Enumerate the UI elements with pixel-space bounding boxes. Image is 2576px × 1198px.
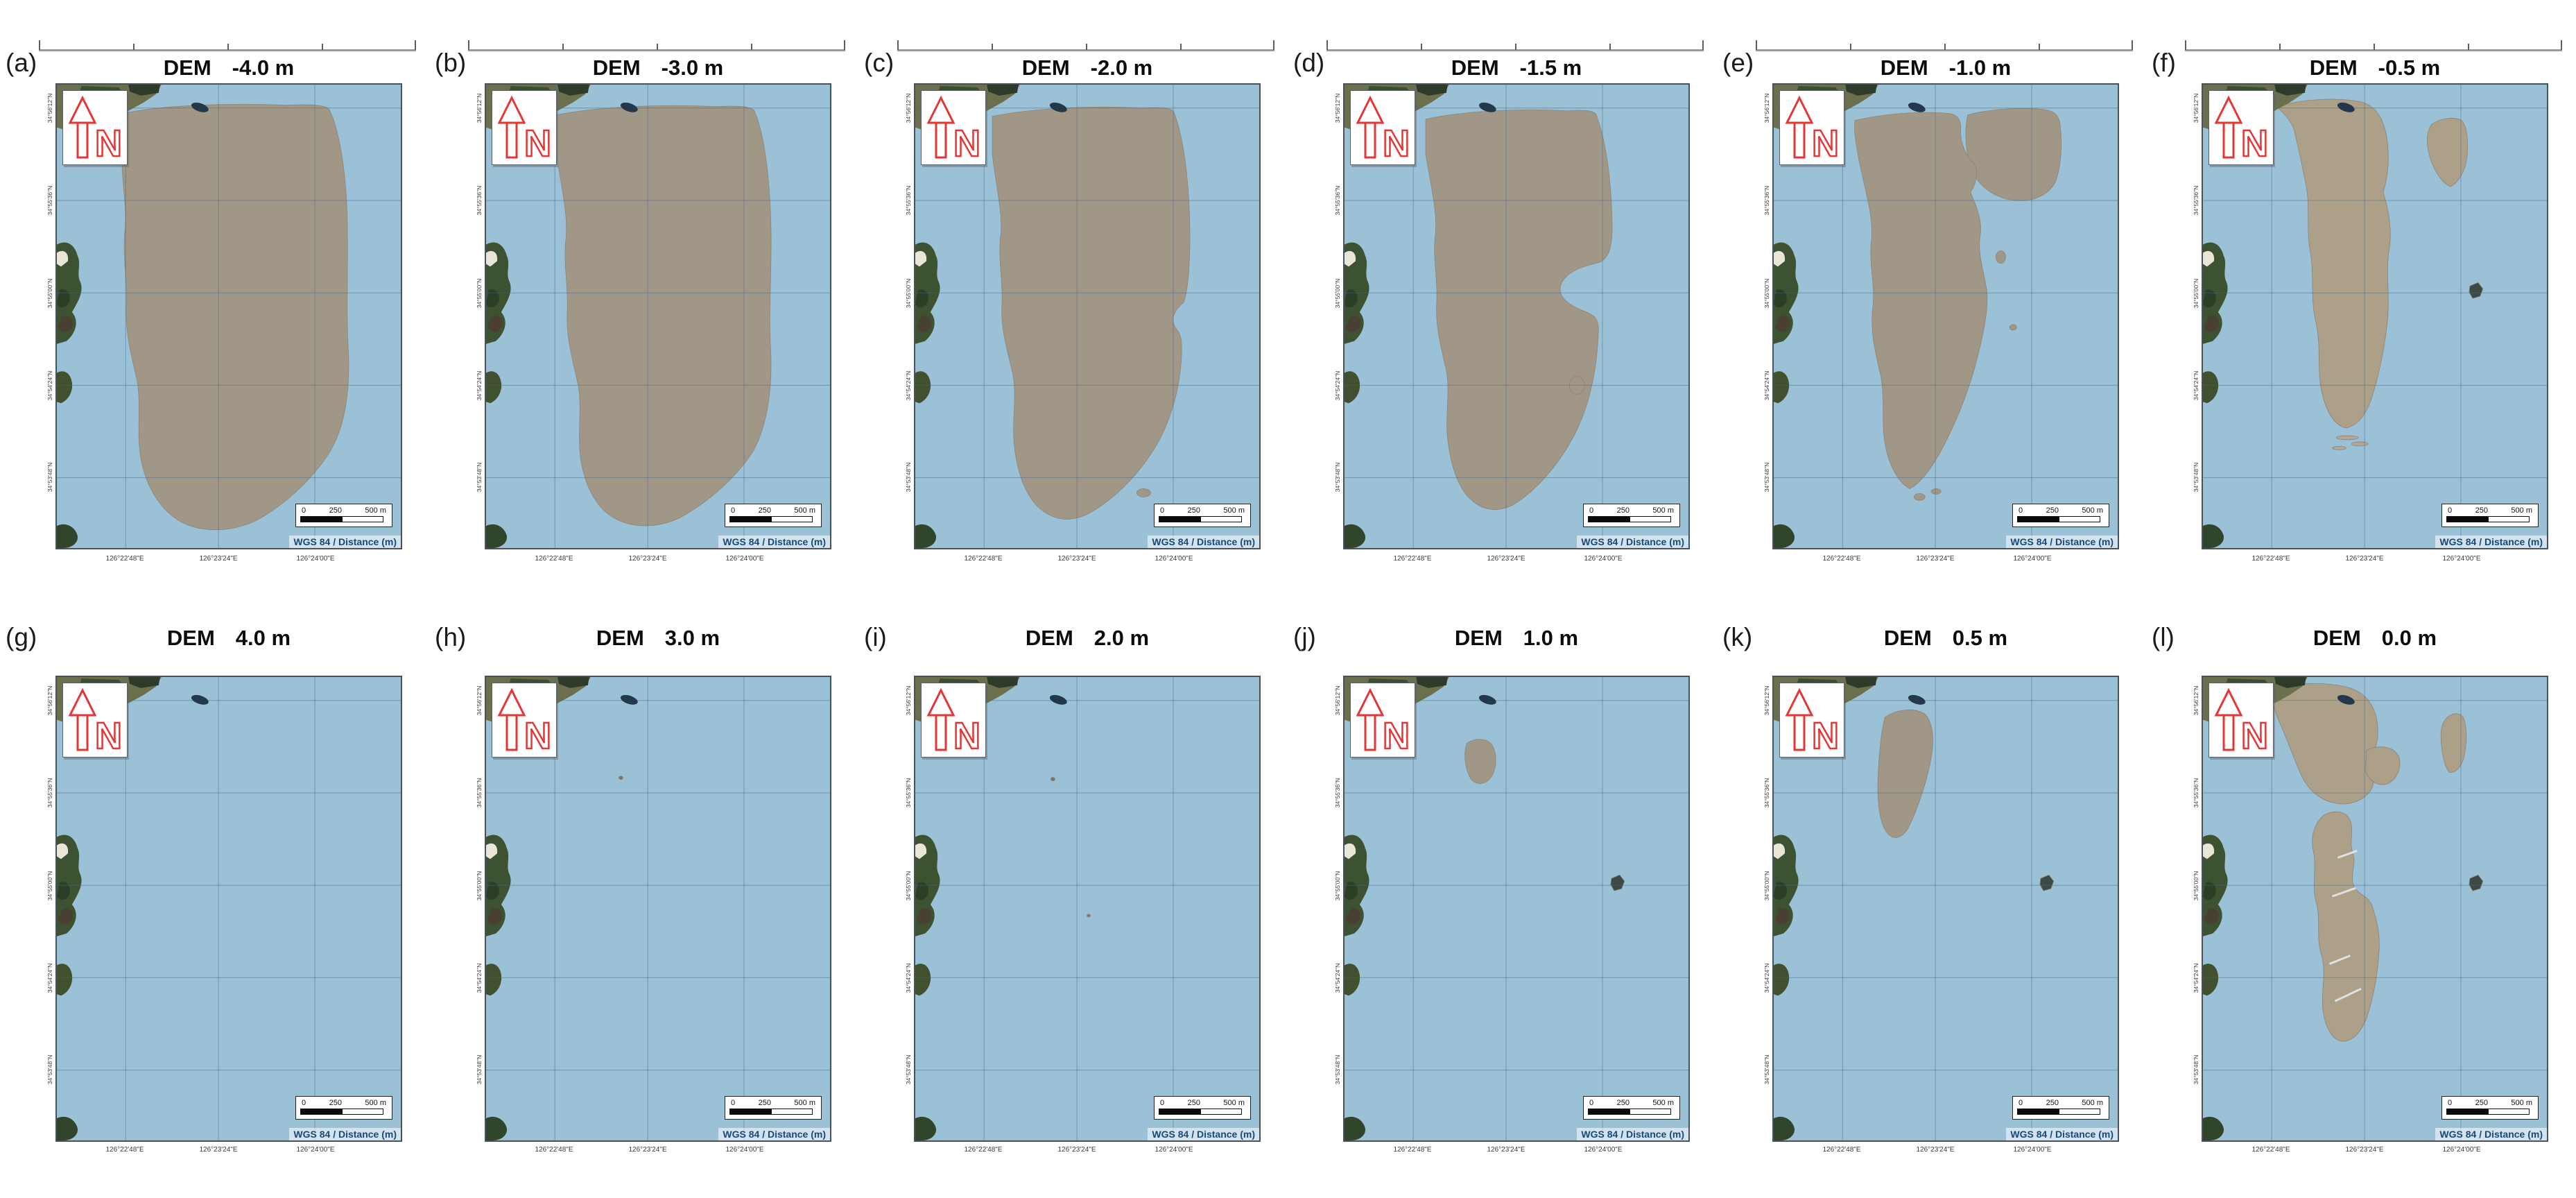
longitude-axis: 126°22'48"E 126°23'24"E 126°24'00"E xyxy=(55,1145,402,1157)
lon-label: 126°23'24"E xyxy=(1487,1146,1525,1154)
lat-label: 34°54'24"N xyxy=(1334,963,1341,993)
lat-label: 34°53'48"N xyxy=(1334,463,1341,493)
north-arrow-box: N xyxy=(921,90,986,165)
lat-label: 34°56'12"N xyxy=(905,94,912,123)
tidal-flat-shape xyxy=(1465,739,1496,784)
scale-tick-500: 500 m xyxy=(794,506,815,515)
lon-label: 126°24'00"E xyxy=(2013,555,2051,563)
north-arrow-icon: N xyxy=(1780,683,1844,757)
panel-title: DEM-0.5 m xyxy=(2202,55,2548,80)
lat-label: 34°55'00"N xyxy=(1763,871,1770,900)
tidal-flat-islands xyxy=(619,776,623,780)
north-arrow-icon: N xyxy=(2209,683,2273,757)
dem-label: DEM xyxy=(1455,626,1503,650)
dem-label: DEM xyxy=(593,55,641,80)
lat-label: 34°54'24"N xyxy=(2193,370,2199,400)
scale-bar: 0 250 500 m xyxy=(2012,1096,2109,1120)
map-view: 34°56'12"N 34°55'36"N 34°55'00"N 34°54'2… xyxy=(55,83,402,549)
north-arrow-icon: N xyxy=(2209,91,2273,164)
scale-tick-zero: 0 xyxy=(2448,1099,2452,1107)
lon-label: 126°24'00"E xyxy=(2442,1146,2480,1154)
north-label: N xyxy=(2241,715,2268,757)
lat-label: 34°56'12"N xyxy=(476,686,483,716)
lat-label: 34°53'48"N xyxy=(2193,463,2199,493)
tidal-flat-shape xyxy=(1051,778,1055,781)
lat-label: 34°55'36"N xyxy=(1334,778,1341,808)
lon-label: 126°23'24"E xyxy=(1916,1146,1954,1154)
lat-label: 34°55'36"N xyxy=(905,778,912,808)
lat-label: 34°54'24"N xyxy=(1334,370,1341,400)
scale-bar: 0 250 500 m xyxy=(2012,504,2109,527)
dem-label: DEM xyxy=(1022,55,1070,80)
dem-label: DEM xyxy=(1026,626,1073,650)
scale-tick-250: 250 xyxy=(2046,506,2059,515)
north-arrow-icon: N xyxy=(63,91,127,164)
lon-label: 126°22'48"E xyxy=(2251,1146,2290,1154)
scale-tick-zero: 0 xyxy=(1160,1099,1164,1107)
panel-id-label: (a) xyxy=(6,49,37,78)
map-panel: (b) DEM-3.0 m 34°56'12"N 34°55'36"N 34°5… xyxy=(429,0,858,576)
map-view: 34°56'12"N 34°55'36"N 34°55'00"N 34°54'2… xyxy=(485,676,831,1142)
lat-label: 34°55'36"N xyxy=(46,778,53,808)
crs-label: WGS 84 / Distance (m) xyxy=(2006,536,2118,548)
map-view: 34°56'12"N 34°55'36"N 34°55'00"N 34°54'2… xyxy=(2202,83,2548,549)
panel-id-label: (d) xyxy=(1293,49,1324,78)
north-arrow-icon: N xyxy=(1351,91,1415,164)
north-arrow-box: N xyxy=(492,683,557,758)
lon-label: 126°23'24"E xyxy=(1057,1146,1096,1154)
map-view: 34°56'12"N 34°55'36"N 34°55'00"N 34°54'2… xyxy=(914,676,1261,1142)
lon-label: 126°24'00"E xyxy=(725,1146,763,1154)
panel-id-label: (g) xyxy=(6,623,37,652)
north-label: N xyxy=(2241,123,2268,164)
longitude-axis: 126°22'48"E 126°23'24"E 126°24'00"E xyxy=(2202,1145,2548,1157)
scale-tick-500: 500 m xyxy=(1652,1099,1674,1107)
scale-tick-500: 500 m xyxy=(1652,506,1674,515)
tidal-flat-shape xyxy=(619,776,623,780)
lat-label: 34°55'36"N xyxy=(2193,186,2199,216)
lat-label: 34°56'12"N xyxy=(46,94,53,123)
panel-id-label: (j) xyxy=(1293,623,1316,652)
map-view: 34°56'12"N 34°55'36"N 34°55'00"N 34°54'2… xyxy=(485,83,831,549)
tidal-flat-shape xyxy=(2009,325,2016,330)
dem-value: -1.5 m xyxy=(1520,55,1582,80)
panel-title: DEM-1.0 m xyxy=(1772,55,2119,80)
lon-label: 126°24'00"E xyxy=(1155,1146,1193,1154)
panel-id-label: (k) xyxy=(1722,623,1752,652)
lon-label: 126°22'48"E xyxy=(2251,555,2290,563)
lat-label: 34°53'48"N xyxy=(905,463,912,493)
dem-value: 3.0 m xyxy=(665,626,720,650)
longitude-axis: 126°22'48"E 126°23'24"E 126°24'00"E xyxy=(55,554,402,566)
lat-label: 34°55'00"N xyxy=(1334,871,1341,900)
scale-tick-500: 500 m xyxy=(365,1099,386,1107)
north-arrow-icon: N xyxy=(1780,91,1844,164)
lat-label: 34°55'00"N xyxy=(905,871,912,900)
lat-label: 34°55'00"N xyxy=(476,871,483,900)
lon-label: 126°22'48"E xyxy=(1822,1146,1860,1154)
figure-row-positive-dem: (g) DEM4.0 m 34°56'12"N 34°55'36"N 34°55… xyxy=(0,617,2575,1193)
crs-label: WGS 84 / Distance (m) xyxy=(2435,1128,2547,1140)
lon-label: 126°24'00"E xyxy=(1584,555,1622,563)
map-panel: (d) DEM-1.5 m 34°56'12"N 34°55'36"N 34°5… xyxy=(1288,0,1717,576)
lat-label: 34°54'24"N xyxy=(2193,963,2199,993)
north-arrow-icon: N xyxy=(1351,683,1415,757)
lon-label: 126°23'24"E xyxy=(199,1146,237,1154)
map-panel: (l) DEM0.0 m 34°56'12"N 34°55'36"N 34°55… xyxy=(2146,617,2575,1193)
map-panel: (f) DEM-0.5 m 34°56'12"N 34°55'36"N 34°5… xyxy=(2146,0,2575,576)
scale-bar: 0 250 500 m xyxy=(2441,504,2539,527)
map-panel: (i) DEM2.0 m 34°56'12"N 34°55'36"N 34°55… xyxy=(858,617,1288,1193)
lat-label: 34°53'48"N xyxy=(476,1055,483,1085)
north-label: N xyxy=(524,715,551,757)
lat-label: 34°53'48"N xyxy=(476,463,483,493)
dem-label: DEM xyxy=(167,626,215,650)
dem-label: DEM xyxy=(1884,626,1932,650)
lon-label: 126°23'24"E xyxy=(2345,555,2383,563)
scale-tick-zero: 0 xyxy=(2448,506,2452,515)
scale-bar: 0 250 500 m xyxy=(295,1096,392,1120)
top-ruler xyxy=(468,40,845,51)
dem-value: 0.0 m xyxy=(2382,626,2437,650)
map-panel: (j) DEM1.0 m 34°56'12"N 34°55'36"N 34°55… xyxy=(1288,617,1717,1193)
panel-id-label: (e) xyxy=(1722,49,1754,78)
dem-value: -2.0 m xyxy=(1091,55,1153,80)
map-panel: (g) DEM4.0 m 34°56'12"N 34°55'36"N 34°55… xyxy=(0,617,429,1193)
scale-bar: 0 250 500 m xyxy=(1583,1096,1680,1120)
north-label: N xyxy=(524,123,551,164)
lat-label: 34°55'36"N xyxy=(1334,186,1341,216)
dem-label: DEM xyxy=(2310,55,2358,80)
dem-value: 4.0 m xyxy=(236,626,291,650)
lat-label: 34°55'36"N xyxy=(905,186,912,216)
scale-tick-500: 500 m xyxy=(1223,1099,1245,1107)
lat-label: 34°53'48"N xyxy=(46,463,53,493)
dem-value: -4.0 m xyxy=(232,55,295,80)
tidal-flat-shape xyxy=(2336,436,2358,440)
lat-label: 34°53'48"N xyxy=(46,1055,53,1085)
north-arrow-box: N xyxy=(1779,90,1844,165)
north-label: N xyxy=(95,715,122,757)
scale-tick-250: 250 xyxy=(759,1099,771,1107)
map-panel: (e) DEM-1.0 m 34°56'12"N 34°55'36"N 34°5… xyxy=(1717,0,2146,576)
top-ruler xyxy=(2185,40,2562,51)
crs-label: WGS 84 / Distance (m) xyxy=(289,1128,401,1140)
north-label: N xyxy=(1812,715,1839,757)
lat-label: 34°56'12"N xyxy=(2193,94,2199,123)
panel-title: DEM-1.5 m xyxy=(1343,55,1690,80)
tidal-flat-shape xyxy=(2332,446,2346,450)
scale-bar: 0 250 500 m xyxy=(1583,504,1680,527)
north-label: N xyxy=(1383,715,1410,757)
lon-label: 126°24'00"E xyxy=(1584,1146,1622,1154)
dem-value: 1.0 m xyxy=(1523,626,1578,650)
longitude-axis: 126°22'48"E 126°23'24"E 126°24'00"E xyxy=(2202,554,2548,566)
scale-bar: 0 250 500 m xyxy=(295,504,392,527)
lat-label: 34°55'36"N xyxy=(1763,778,1770,808)
top-ruler xyxy=(1756,40,2133,51)
crs-label: WGS 84 / Distance (m) xyxy=(1148,536,1259,548)
north-arrow-box: N xyxy=(2208,90,2274,165)
tidal-flat-shape xyxy=(2351,442,2368,446)
panel-id-label: (c) xyxy=(864,49,894,78)
lon-label: 126°23'24"E xyxy=(1916,555,1954,563)
longitude-axis: 126°22'48"E 126°23'24"E 126°24'00"E xyxy=(485,554,831,566)
lat-label: 34°55'00"N xyxy=(2193,278,2199,308)
scale-tick-zero: 0 xyxy=(2019,1099,2023,1107)
lat-label: 34°55'00"N xyxy=(2193,871,2199,900)
map-panel: (c) DEM-2.0 m 34°56'12"N 34°55'36"N 34°5… xyxy=(858,0,1288,576)
scale-tick-zero: 0 xyxy=(1160,506,1164,515)
scale-tick-zero: 0 xyxy=(302,1099,306,1107)
lon-label: 126°24'00"E xyxy=(2442,555,2480,563)
tidal-flat-shape xyxy=(1931,489,1941,495)
lon-label: 126°22'48"E xyxy=(1393,555,1431,563)
tidal-flat-shape xyxy=(556,105,771,526)
dem-label: DEM xyxy=(2313,626,2361,650)
crs-label: WGS 84 / Distance (m) xyxy=(718,536,830,548)
lon-label: 126°22'48"E xyxy=(1393,1146,1431,1154)
lat-label: 34°56'12"N xyxy=(905,686,912,716)
north-arrow-icon: N xyxy=(922,683,985,757)
map-view: 34°56'12"N 34°55'36"N 34°55'00"N 34°54'2… xyxy=(55,676,402,1142)
panel-title: DEM0.5 m xyxy=(1772,626,2119,651)
lat-label: 34°54'24"N xyxy=(476,370,483,400)
scale-tick-zero: 0 xyxy=(1589,1099,1593,1107)
lat-label: 34°55'36"N xyxy=(2193,778,2199,808)
lon-label: 126°23'24"E xyxy=(2345,1146,2383,1154)
map-view: 34°56'12"N 34°55'36"N 34°55'00"N 34°54'2… xyxy=(1772,83,2119,549)
lat-label: 34°54'24"N xyxy=(1763,963,1770,993)
lat-label: 34°56'12"N xyxy=(476,94,483,123)
map-view: 34°56'12"N 34°55'36"N 34°55'00"N 34°54'2… xyxy=(1343,83,1690,549)
dem-label: DEM xyxy=(164,55,211,80)
dem-label: DEM xyxy=(1881,55,1928,80)
lon-label: 126°24'00"E xyxy=(296,555,334,563)
lon-label: 126°22'48"E xyxy=(105,555,144,563)
tidal-flat-shape xyxy=(1996,251,2005,264)
panel-id-label: (b) xyxy=(435,49,466,78)
lat-label: 34°55'00"N xyxy=(46,278,53,308)
north-arrow-icon: N xyxy=(922,91,985,164)
north-arrow-box: N xyxy=(62,90,128,165)
dem-value: 0.5 m xyxy=(1953,626,2007,650)
crs-label: WGS 84 / Distance (m) xyxy=(289,536,401,548)
panel-id-label: (f) xyxy=(2152,49,2176,78)
longitude-axis: 126°22'48"E 126°23'24"E 126°24'00"E xyxy=(1772,554,2119,566)
lat-label: 34°54'24"N xyxy=(46,963,53,993)
scale-tick-500: 500 m xyxy=(365,506,386,515)
map-panel: (a) DEM-4.0 m 34°56'12"N 34°55'36"N 34°5… xyxy=(0,0,429,576)
north-label: N xyxy=(95,123,122,164)
lat-label: 34°53'48"N xyxy=(1334,1055,1341,1085)
lat-label: 34°55'00"N xyxy=(1334,278,1341,308)
lon-label: 126°22'48"E xyxy=(105,1146,144,1154)
lon-label: 126°24'00"E xyxy=(2013,1146,2051,1154)
scale-tick-zero: 0 xyxy=(302,506,306,515)
top-ruler xyxy=(897,40,1274,51)
scale-tick-250: 250 xyxy=(1617,1099,1630,1107)
longitude-axis: 126°22'48"E 126°23'24"E 126°24'00"E xyxy=(914,1145,1261,1157)
dem-value: -1.0 m xyxy=(1949,55,2012,80)
longitude-axis: 126°22'48"E 126°23'24"E 126°24'00"E xyxy=(485,1145,831,1157)
north-arrow-icon: N xyxy=(63,683,127,757)
scale-bar: 0 250 500 m xyxy=(1154,1096,1251,1120)
lat-label: 34°54'24"N xyxy=(46,370,53,400)
scale-tick-500: 500 m xyxy=(2511,1099,2532,1107)
lon-label: 126°24'00"E xyxy=(725,555,763,563)
map-view: 34°56'12"N 34°55'36"N 34°55'00"N 34°54'2… xyxy=(914,83,1261,549)
north-arrow-box: N xyxy=(492,90,557,165)
lat-label: 34°54'24"N xyxy=(905,963,912,993)
lat-label: 34°55'36"N xyxy=(46,186,53,216)
longitude-axis: 126°22'48"E 126°23'24"E 126°24'00"E xyxy=(1772,1145,2119,1157)
north-arrow-box: N xyxy=(2208,683,2274,758)
panel-title: DEM1.0 m xyxy=(1343,626,1690,651)
figure-row-negative-dem: (a) DEM-4.0 m 34°56'12"N 34°55'36"N 34°5… xyxy=(0,0,2575,576)
lat-label: 34°55'36"N xyxy=(1763,186,1770,216)
scale-tick-250: 250 xyxy=(329,506,342,515)
longitude-axis: 126°22'48"E 126°23'24"E 126°24'00"E xyxy=(1343,1145,1690,1157)
panel-id-label: (i) xyxy=(864,623,887,652)
lat-label: 34°54'24"N xyxy=(905,370,912,400)
lon-label: 126°23'24"E xyxy=(1057,555,1096,563)
scale-tick-250: 250 xyxy=(1617,506,1630,515)
scale-tick-zero: 0 xyxy=(731,506,735,515)
scale-bar: 0 250 500 m xyxy=(2441,1096,2539,1120)
dem-value: 2.0 m xyxy=(1094,626,1149,650)
north-arrow-box: N xyxy=(1350,683,1415,758)
lat-label: 34°55'00"N xyxy=(476,278,483,308)
scale-tick-500: 500 m xyxy=(2511,506,2532,515)
lat-label: 34°56'12"N xyxy=(2193,686,2199,716)
lat-label: 34°56'12"N xyxy=(1763,94,1770,123)
lat-label: 34°56'12"N xyxy=(1763,686,1770,716)
panel-id-label: (h) xyxy=(435,623,466,652)
lat-label: 34°55'36"N xyxy=(476,186,483,216)
map-panel: (h) DEM3.0 m 34°56'12"N 34°55'36"N 34°55… xyxy=(429,617,858,1193)
crs-label: WGS 84 / Distance (m) xyxy=(1577,1128,1688,1140)
panel-title: DEM-2.0 m xyxy=(914,55,1261,80)
scale-tick-500: 500 m xyxy=(1223,506,1245,515)
north-arrow-icon: N xyxy=(492,91,556,164)
panel-title: DEM2.0 m xyxy=(914,626,1261,651)
north-label: N xyxy=(1383,123,1410,164)
lon-label: 126°22'48"E xyxy=(964,555,1002,563)
tidal-flat-shape xyxy=(1914,493,1925,500)
crs-label: WGS 84 / Distance (m) xyxy=(2435,536,2547,548)
lon-label: 126°23'24"E xyxy=(199,555,237,563)
scale-tick-zero: 0 xyxy=(731,1099,735,1107)
panel-title: DEM0.0 m xyxy=(2202,626,2548,651)
panel-title: DEM-3.0 m xyxy=(485,55,831,80)
lat-label: 34°53'48"N xyxy=(1763,1055,1770,1085)
lon-label: 126°24'00"E xyxy=(296,1146,334,1154)
lat-label: 34°54'24"N xyxy=(1763,370,1770,400)
lat-label: 34°56'12"N xyxy=(46,686,53,716)
dem-flooding-figure: (a) DEM-4.0 m 34°56'12"N 34°55'36"N 34°5… xyxy=(0,0,2576,1198)
scale-tick-250: 250 xyxy=(2475,506,2488,515)
dem-label: DEM xyxy=(596,626,644,650)
lon-label: 126°23'24"E xyxy=(628,555,666,563)
dem-value: -3.0 m xyxy=(662,55,724,80)
lat-label: 34°55'36"N xyxy=(476,778,483,808)
scale-tick-250: 250 xyxy=(2475,1099,2488,1107)
lat-label: 34°56'12"N xyxy=(1334,686,1341,716)
longitude-axis: 126°22'48"E 126°23'24"E 126°24'00"E xyxy=(1343,554,1690,566)
scale-tick-250: 250 xyxy=(329,1099,342,1107)
dem-value: -0.5 m xyxy=(2378,55,2441,80)
top-ruler xyxy=(39,40,416,51)
crs-label: WGS 84 / Distance (m) xyxy=(1577,536,1688,548)
lon-label: 126°24'00"E xyxy=(1155,555,1193,563)
top-ruler xyxy=(1326,40,1704,51)
scale-tick-250: 250 xyxy=(759,506,771,515)
crs-label: WGS 84 / Distance (m) xyxy=(718,1128,830,1140)
scale-tick-250: 250 xyxy=(1188,506,1200,515)
panel-id-label: (l) xyxy=(2152,623,2175,652)
scale-tick-zero: 0 xyxy=(2019,506,2023,515)
north-label: N xyxy=(953,123,980,164)
scale-bar: 0 250 500 m xyxy=(1154,504,1251,527)
lon-label: 126°22'48"E xyxy=(535,555,573,563)
scale-tick-500: 500 m xyxy=(2082,506,2103,515)
tidal-flat-shape xyxy=(1087,914,1090,917)
crs-label: WGS 84 / Distance (m) xyxy=(2006,1128,2118,1140)
panel-title: DEM3.0 m xyxy=(485,626,831,651)
lon-label: 126°22'48"E xyxy=(535,1146,573,1154)
lat-label: 34°54'24"N xyxy=(476,963,483,993)
north-arrow-box: N xyxy=(1350,90,1415,165)
crs-label: WGS 84 / Distance (m) xyxy=(1148,1128,1259,1140)
tidal-flat-shape xyxy=(1136,489,1150,497)
lat-label: 34°53'48"N xyxy=(905,1055,912,1085)
lon-label: 126°23'24"E xyxy=(1487,555,1525,563)
lat-label: 34°53'48"N xyxy=(2193,1055,2199,1085)
lat-label: 34°55'00"N xyxy=(46,871,53,900)
scale-bar: 0 250 500 m xyxy=(725,504,822,527)
lat-label: 34°53'48"N xyxy=(1763,463,1770,493)
north-arrow-box: N xyxy=(1779,683,1844,758)
north-label: N xyxy=(953,715,980,757)
lon-label: 126°22'48"E xyxy=(1822,555,1860,563)
panel-title: DEM-4.0 m xyxy=(55,55,402,80)
map-view: 34°56'12"N 34°55'36"N 34°55'00"N 34°54'2… xyxy=(2202,676,2548,1142)
scale-tick-500: 500 m xyxy=(2082,1099,2103,1107)
scale-bar: 0 250 500 m xyxy=(725,1096,822,1120)
dem-label: DEM xyxy=(1451,55,1499,80)
lon-label: 126°22'48"E xyxy=(964,1146,1002,1154)
map-panel: (k) DEM0.5 m 34°56'12"N 34°55'36"N 34°55… xyxy=(1717,617,2146,1193)
map-view: 34°56'12"N 34°55'36"N 34°55'00"N 34°54'2… xyxy=(1772,676,2119,1142)
scale-tick-zero: 0 xyxy=(1589,506,1593,515)
map-view: 34°56'12"N 34°55'36"N 34°55'00"N 34°54'2… xyxy=(1343,676,1690,1142)
lon-label: 126°23'24"E xyxy=(628,1146,666,1154)
scale-tick-250: 250 xyxy=(2046,1099,2059,1107)
lat-label: 34°56'12"N xyxy=(1334,94,1341,123)
panel-title: DEM4.0 m xyxy=(55,626,402,651)
north-arrow-box: N xyxy=(921,683,986,758)
longitude-axis: 126°22'48"E 126°23'24"E 126°24'00"E xyxy=(914,554,1261,566)
north-arrow-box: N xyxy=(62,683,128,758)
north-arrow-icon: N xyxy=(492,683,556,757)
scale-tick-500: 500 m xyxy=(794,1099,815,1107)
tidal-flat-islands xyxy=(556,105,771,526)
north-label: N xyxy=(1812,123,1839,164)
lat-label: 34°55'00"N xyxy=(1763,278,1770,308)
scale-tick-250: 250 xyxy=(1188,1099,1200,1107)
lat-label: 34°55'00"N xyxy=(905,278,912,308)
